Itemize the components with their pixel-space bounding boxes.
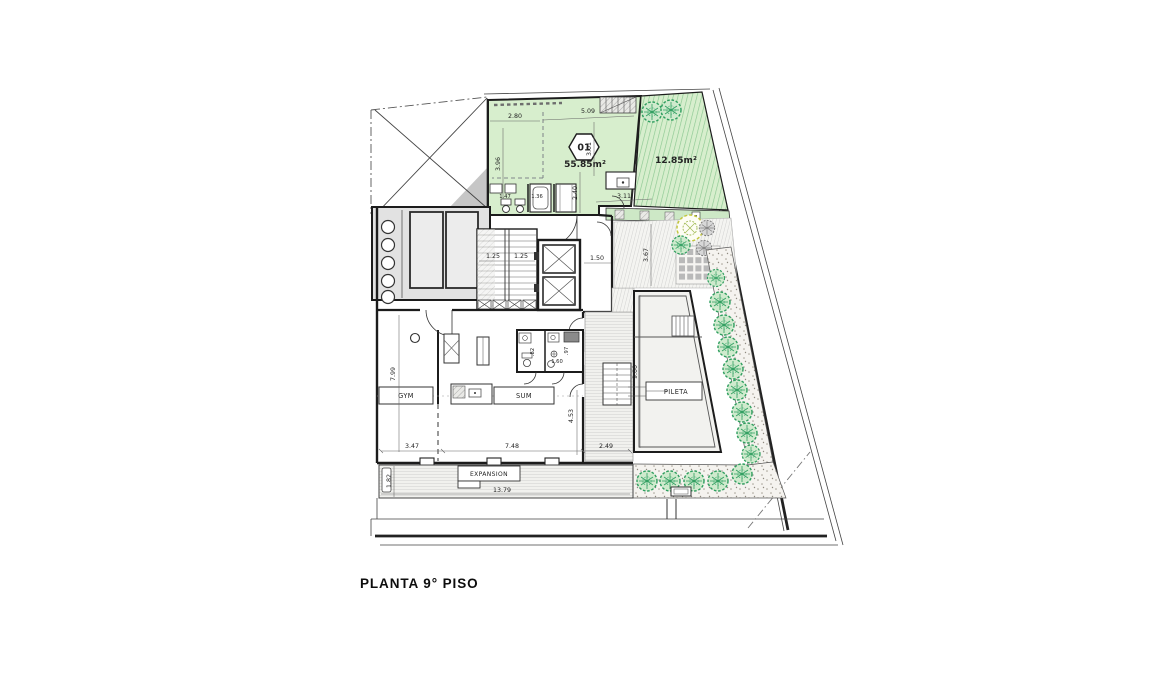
- tree: [732, 464, 752, 484]
- gym-bench: [444, 334, 459, 363]
- tree: [718, 337, 738, 357]
- tree: [714, 315, 734, 335]
- tree: [642, 102, 662, 122]
- expansion-label-tab: [458, 481, 480, 488]
- bath-sink-2: [548, 333, 559, 342]
- terrace-area-label: 12.85m²: [655, 156, 697, 166]
- expansion-label: EXPANSION: [470, 471, 508, 478]
- tree: [661, 100, 681, 120]
- sum-door-arc-2: [570, 384, 583, 397]
- dim-apt-left: 3.96: [495, 157, 502, 171]
- unit-area-label: 55.85m²: [564, 160, 606, 170]
- dim-apt-bottom: 3.11: [617, 193, 631, 200]
- floor-plan-page: 01 55.85m² 12.85m²: [0, 0, 1170, 675]
- tree: [737, 423, 757, 443]
- dim-pool-height: 9.00: [632, 365, 639, 379]
- vent-circle: [382, 275, 395, 288]
- planter-box: [665, 212, 674, 221]
- tree: [727, 380, 747, 400]
- dim-exp-width: 13.79: [493, 487, 511, 494]
- deck-connector: [612, 288, 634, 312]
- expansion-band: EXPANSION: [379, 465, 676, 519]
- site-bottom-lines: [371, 498, 838, 545]
- equipment-unit: [410, 212, 443, 288]
- dim-bottom-b: 7.48: [505, 443, 519, 450]
- planter-box: [640, 211, 649, 220]
- roof-void: [375, 98, 487, 215]
- sum-label: SUM: [516, 392, 532, 400]
- dim-apt-top-left: 2.80: [508, 113, 522, 120]
- dim-hall: 1.50: [590, 255, 604, 262]
- elevator-door-2: [534, 284, 539, 292]
- tree: [723, 359, 743, 379]
- bath-shower-unit: [564, 332, 579, 342]
- counter-sink: [453, 386, 465, 398]
- tree: [672, 236, 690, 254]
- dim-sum-right: 4.53: [568, 409, 575, 423]
- tree: [710, 292, 730, 312]
- dim-stair-a: 1.25: [486, 253, 500, 260]
- counter-dot: [474, 392, 476, 394]
- dim-wc-e: .97: [564, 347, 570, 355]
- bath-door-arc-1: [524, 372, 536, 384]
- elevator-door-1: [534, 252, 539, 260]
- dim-apt-low: 2.40: [572, 186, 579, 200]
- vent-circle: [382, 291, 395, 304]
- bath-sink-1: [519, 333, 531, 343]
- tree: [708, 270, 725, 287]
- tree: [742, 445, 760, 463]
- vent-circle: [382, 239, 395, 252]
- equipment-unit: [446, 212, 478, 288]
- tree-gray: [699, 220, 714, 235]
- bath-door-arc-2: [552, 372, 564, 384]
- plan-title: PLANTA 9° PISO: [360, 576, 479, 591]
- bath-wc-1: [523, 359, 530, 366]
- stair-hatch: [477, 229, 495, 309]
- dim-bath-b: 1.36: [531, 194, 543, 200]
- vent-circle: [382, 221, 395, 234]
- gym-label: GYM: [398, 392, 414, 400]
- dim-wc-mid: 1.60: [551, 359, 563, 365]
- dim-apt-top-right: 5.09: [581, 108, 595, 115]
- planter-box: [615, 210, 624, 219]
- dim-bath-a: 1.47: [499, 194, 511, 200]
- vanity-left: [490, 184, 502, 193]
- table-dot: [622, 181, 624, 183]
- wc-bowl-2: [517, 206, 524, 213]
- vanity-right: [505, 184, 516, 193]
- dim-bottom-c: 2.49: [599, 443, 613, 450]
- dim-stair-b: 1.25: [514, 253, 528, 260]
- tree: [708, 471, 728, 491]
- dim-exp-height: 1.82: [386, 474, 393, 488]
- corridor-walls: [583, 215, 612, 312]
- floor-plan-drawing: 01 55.85m² 12.85m²: [0, 0, 1170, 675]
- tree: [732, 402, 752, 422]
- corridor-door-arc: [597, 222, 611, 236]
- column: [411, 334, 420, 343]
- wc-bowl-1: [503, 206, 510, 213]
- pool-outline: [634, 291, 721, 452]
- expansion-post: [667, 499, 676, 519]
- pool-stairs: [672, 316, 694, 336]
- pool-label: PILETA: [664, 388, 688, 396]
- dim-bottom-a: 3.47: [405, 443, 419, 450]
- tree: [637, 471, 657, 491]
- dim-wc-w: .82: [530, 348, 536, 356]
- wc-tank-2: [515, 199, 525, 205]
- vent-circle: [382, 257, 395, 270]
- dim-gym-height: 7.99: [390, 367, 397, 381]
- dim-deck-top: 3.67: [643, 248, 650, 262]
- dim-apt-mid: 3.01: [586, 142, 593, 156]
